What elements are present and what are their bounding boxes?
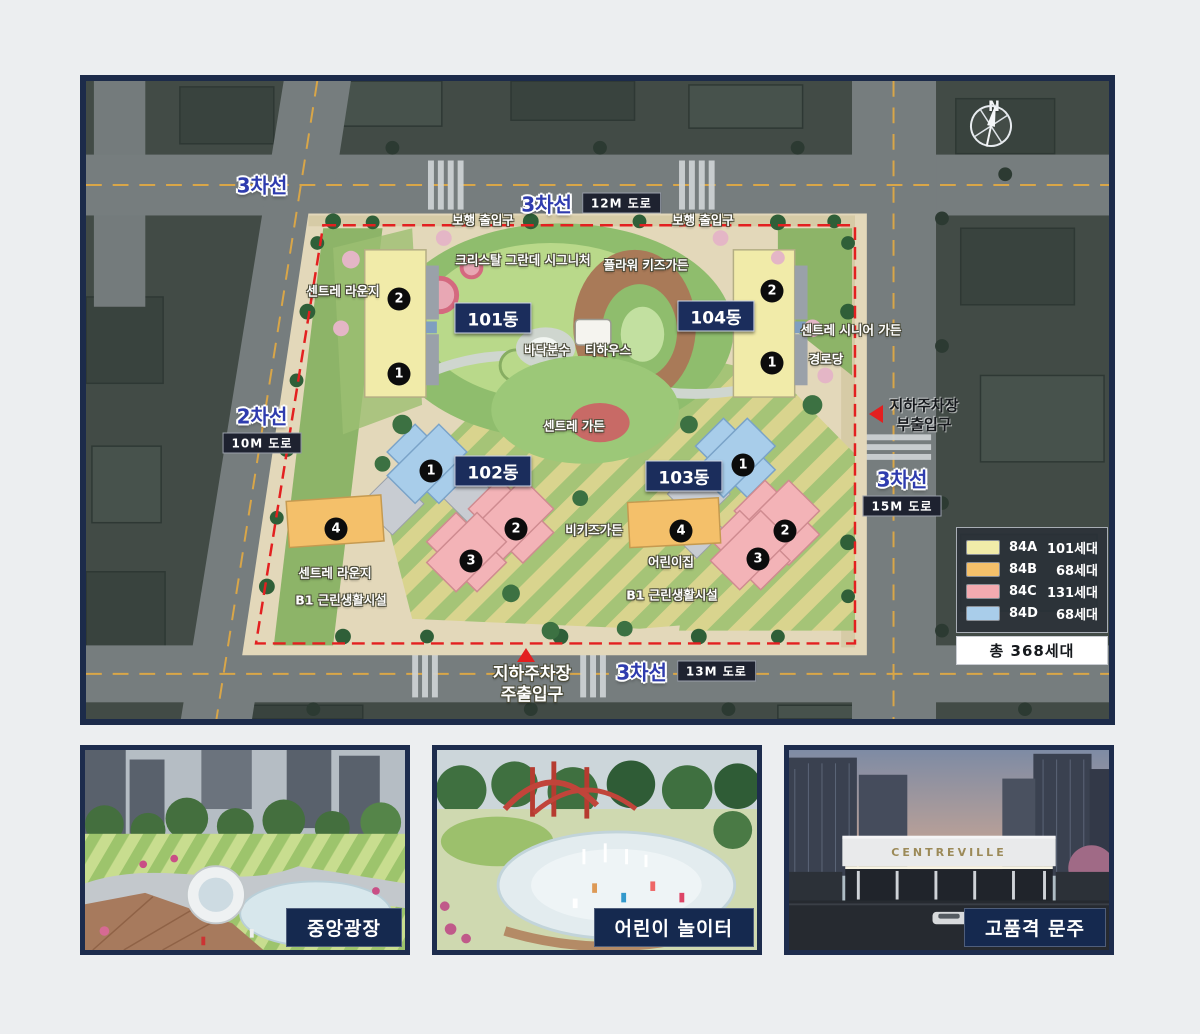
legend-box: 84A 101세대 84B 68세대 84C 131세대 84D 68세대 [956,527,1108,633]
building-label-101: 101동 [454,303,531,334]
legend-swatch-84a [966,540,1000,555]
parking-sub-arrow-icon [869,405,883,423]
label-daycare: 어린이집 [648,552,694,571]
pedestrian-entrance-left: 보행 출입구 [452,210,514,229]
unit-circle-102-2: 2 [505,518,528,541]
label-centre-senior-garden: 센트레 시니어 가든 [801,320,902,339]
photo-central-plaza: 중앙광장 [80,745,410,955]
gate-sign-centreville: CENTREVILLE [891,846,1006,859]
parking-sub-entrance: 지하주차장 부출입구 [889,396,958,434]
photo-main-gate: CENTREVILLE 고품격 문주 [784,745,1114,955]
unit-circle-103-2: 2 [774,520,797,543]
road-label-top: 3차선 12M 도로 [521,189,661,218]
road-lanes-left: 2차선 [223,401,302,430]
label-floor-fountain: 바닥분수 [524,340,570,359]
legend-item-84a: 84A 101세대 [966,538,1098,557]
legend-item-84c: 84C 131세대 [966,582,1098,601]
label-crystal-grande-signature: 크리스탈 그란데 시그니처 [455,250,590,269]
building-label-104: 104동 [677,301,754,332]
road-label-outer-top: 3차선 [237,170,288,199]
label-bee-kids-garden: 비키즈가든 [565,520,623,539]
unit-circle-104-1: 1 [761,352,784,375]
label-senior-center: 경로당 [809,349,844,368]
photo-caption-main-gate: 고품격 문주 [964,908,1106,947]
unit-circle-103-1: 1 [732,454,755,477]
label-flower-kids-garden: 플라워 키즈가든 [604,255,689,274]
road-lanes-top: 3차선 [521,189,572,218]
road-size-left: 10M 도로 [223,433,302,454]
compass-icon [964,99,1018,153]
legend-item-84b: 84B 68세대 [966,560,1098,579]
road-lanes-right: 3차선 [863,464,942,493]
legend-item-84d: 84D 68세대 [966,604,1098,623]
unit-circle-102-1: 1 [420,460,443,483]
legend-total: 총 368세대 [956,636,1108,665]
label-tea-house: 티하우스 [585,340,631,359]
label-centre-lounge-bottom: 센트레 라운지 [298,563,371,582]
unit-circle-103-4: 4 [670,520,693,543]
legend: 84A 101세대 84B 68세대 84C 131세대 84D 68세대 [956,527,1108,665]
unit-circle-103-3: 3 [747,548,770,571]
site-plan-map: 3차선 3차선 12M 도로 2차선 10M 도로 3차선 15M 도로 3차선… [80,75,1115,725]
road-size-bottom: 13M 도로 [677,661,756,682]
road-lanes-bottom: 3차선 [616,657,667,686]
road-size-right: 15M 도로 [863,496,942,517]
parking-main-entrance: 지하주차장 주출입구 [493,664,571,707]
compass: N [964,99,1024,179]
unit-circle-101-2: 2 [388,288,411,311]
road-label-left: 2차선 10M 도로 [223,401,302,454]
label-centre-lounge-top: 센트레 라운지 [306,281,379,300]
road-size-top: 12M 도로 [582,193,661,214]
unit-circle-102-3: 3 [460,550,483,573]
parking-main-arrow-icon [517,648,535,662]
unit-circle-101-1: 1 [388,363,411,386]
label-centre-garden: 센트레 가든 [543,416,605,435]
label-b1-neighborhood-right: B1 근린생활시설 [626,585,718,604]
legend-swatch-84c [966,584,1000,599]
photo-caption-children-playground: 어린이 놀이터 [594,908,755,947]
unit-circle-102-4: 4 [325,518,348,541]
legend-swatch-84b [966,562,1000,577]
photo-strip: 중앙광장 어린이 놀이터 [80,745,1115,955]
road-label-bottom: 3차선 13M 도로 [616,657,756,686]
pedestrian-entrance-right: 보행 출입구 [672,210,734,229]
unit-circle-104-2: 2 [761,280,784,303]
building-label-102: 102동 [454,456,531,487]
road-label-right: 3차선 15M 도로 [863,464,942,517]
photo-children-playground: 어린이 놀이터 [432,745,762,955]
legend-swatch-84d [966,606,1000,621]
building-label-103: 103동 [645,461,722,492]
label-b1-neighborhood-left: B1 근린생활시설 [295,590,387,609]
site-plan-artwork: 3차선 3차선 12M 도로 2차선 10M 도로 3차선 15M 도로 3차선… [86,81,1109,719]
photo-caption-central-plaza: 중앙광장 [286,908,402,947]
